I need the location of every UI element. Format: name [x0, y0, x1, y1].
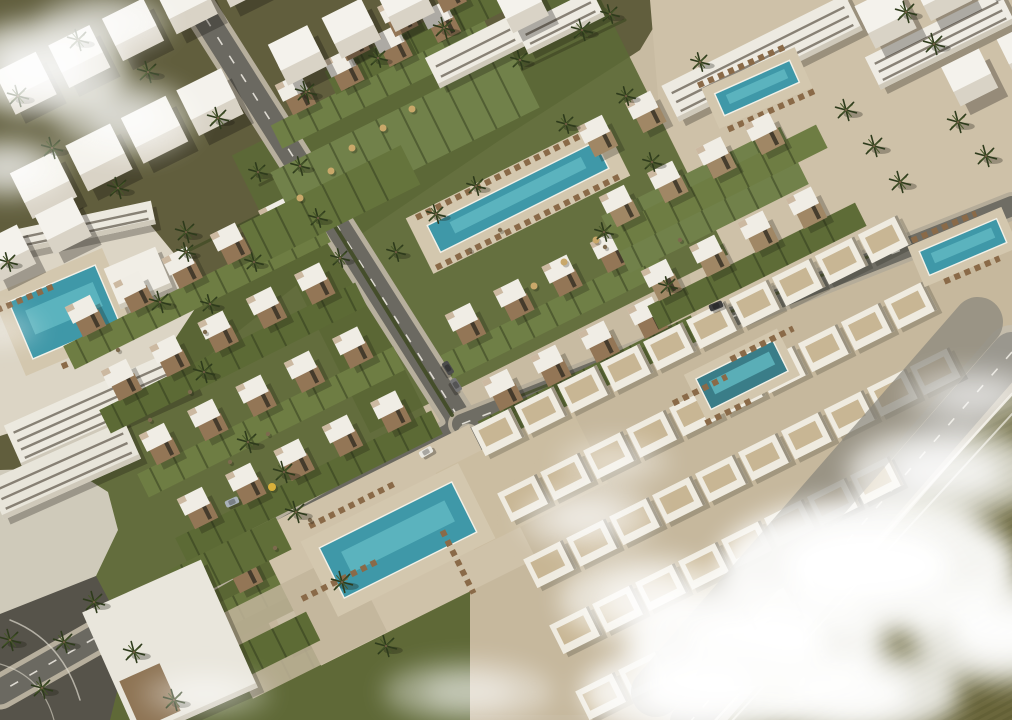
scene-root — [0, 0, 1012, 720]
render-canvas — [0, 0, 1012, 720]
aerial-development-render — [0, 0, 1012, 720]
